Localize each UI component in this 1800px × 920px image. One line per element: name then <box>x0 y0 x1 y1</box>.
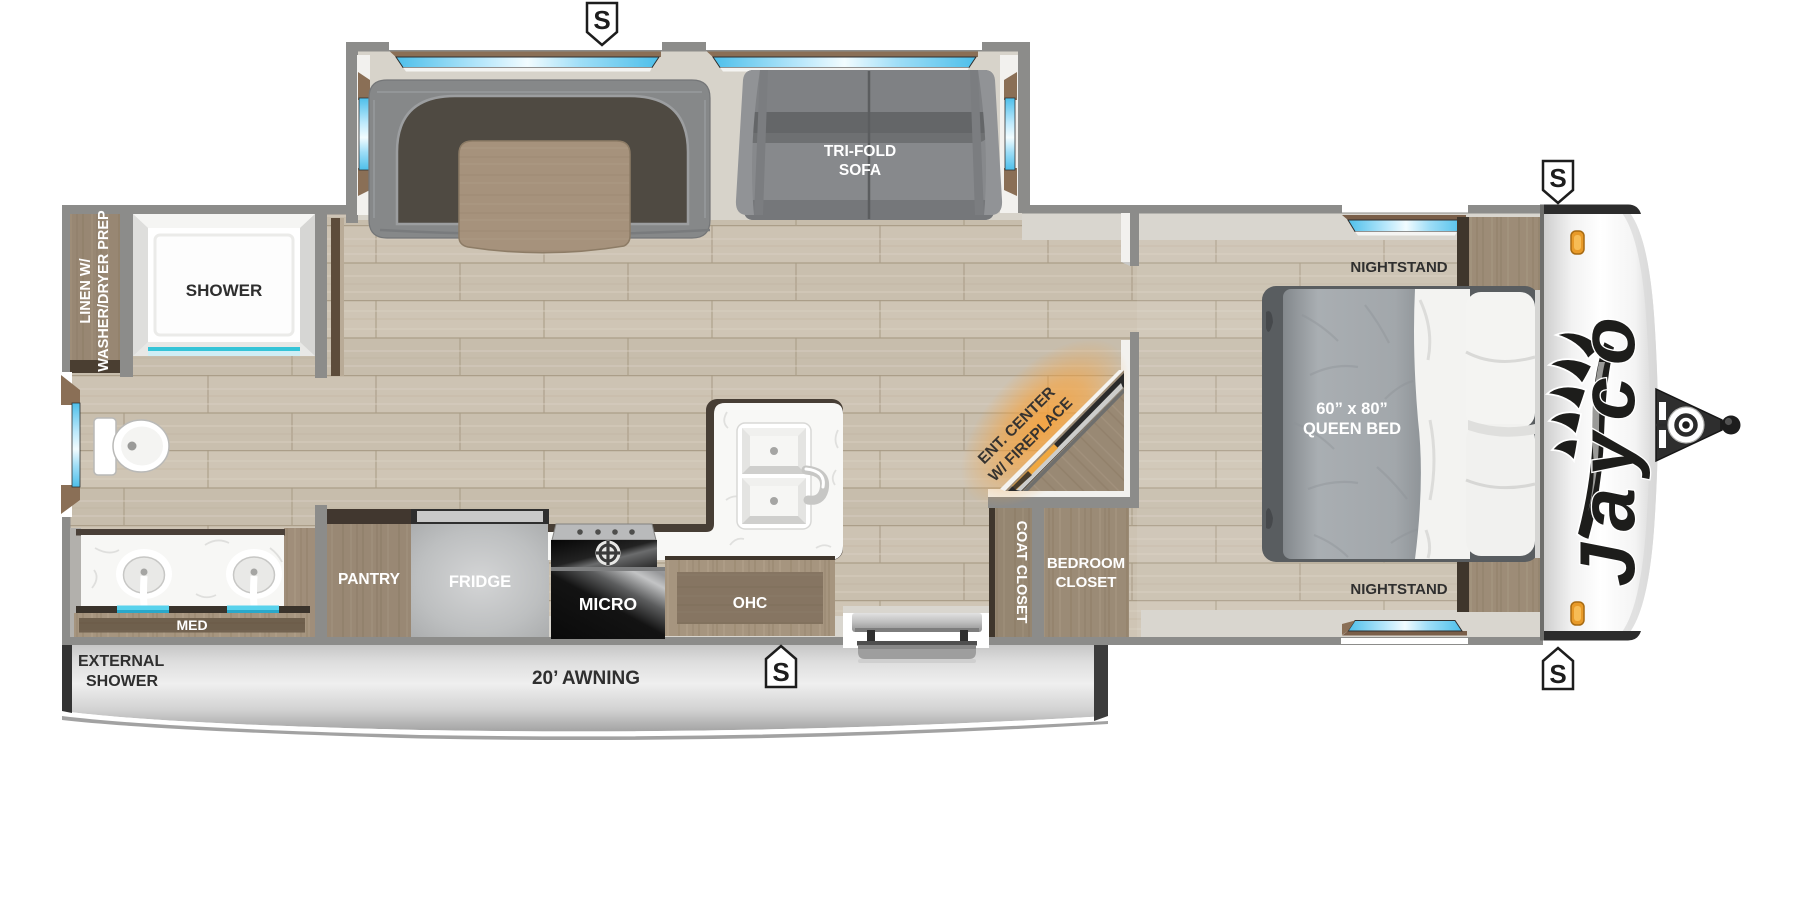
svg-text:WASHER/DRYER PREP: WASHER/DRYER PREP <box>96 210 112 372</box>
svg-text:S: S <box>772 657 789 687</box>
svg-text:SOFA: SOFA <box>839 162 881 179</box>
svg-text:LINEN W/: LINEN W/ <box>78 258 94 323</box>
svg-text:S: S <box>1549 163 1566 193</box>
svg-text:SHOWER: SHOWER <box>186 281 263 300</box>
svg-text:COAT CLOSET: COAT CLOSET <box>1013 521 1029 624</box>
svg-text:NIGHTSTAND: NIGHTSTAND <box>1350 581 1447 598</box>
svg-text:20’ AWNING: 20’ AWNING <box>532 668 640 689</box>
svg-text:CLOSET: CLOSET <box>1056 574 1117 591</box>
svg-text:SHOWER: SHOWER <box>86 673 158 690</box>
svg-text:MICRO: MICRO <box>579 594 637 614</box>
svg-text:FRIDGE: FRIDGE <box>449 573 511 591</box>
svg-text:QUEEN BED: QUEEN BED <box>1303 420 1401 438</box>
svg-text:NIGHTSTAND: NIGHTSTAND <box>1350 259 1447 276</box>
svg-text:PANTRY: PANTRY <box>338 571 401 588</box>
svg-text:60” x 80”: 60” x 80” <box>1316 400 1388 418</box>
svg-text:S: S <box>1549 659 1566 689</box>
svg-text:MED: MED <box>176 617 207 633</box>
svg-text:BEDROOM: BEDROOM <box>1047 555 1125 572</box>
svg-text:OHC: OHC <box>733 595 767 612</box>
svg-text:Jayco: Jayco <box>1563 305 1651 586</box>
svg-text:S: S <box>593 5 610 35</box>
svg-text:EXTERNAL: EXTERNAL <box>78 653 164 670</box>
svg-text:TRI-FOLD: TRI-FOLD <box>824 143 896 160</box>
